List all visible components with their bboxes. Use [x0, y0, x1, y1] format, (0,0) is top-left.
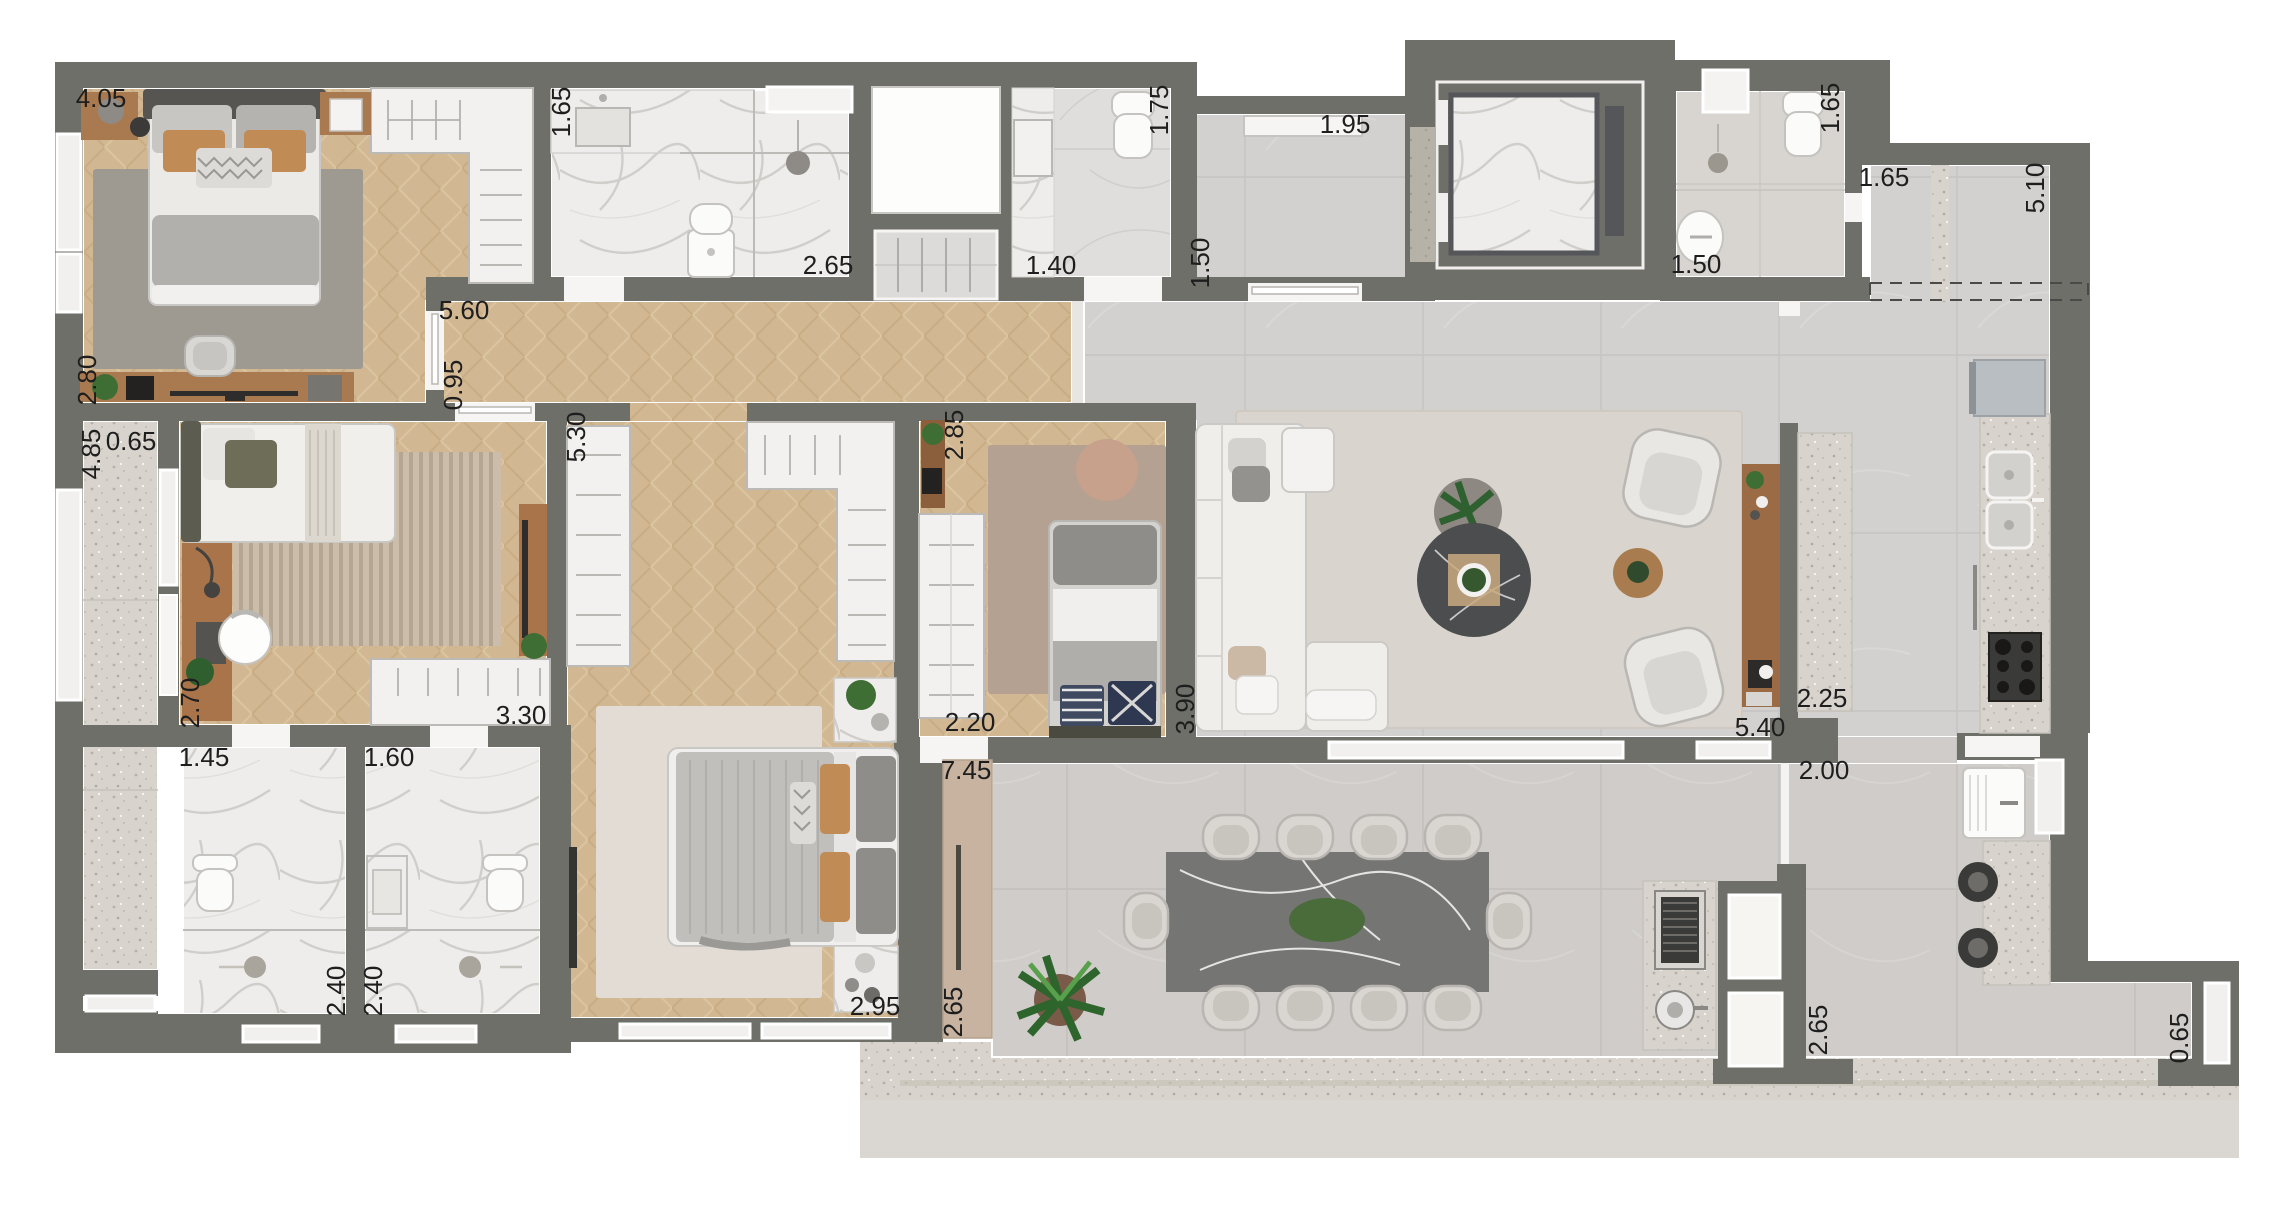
- svg-text:7.45: 7.45: [941, 755, 992, 785]
- svg-text:5.30: 5.30: [561, 412, 591, 463]
- svg-text:1.65: 1.65: [1859, 162, 1910, 192]
- svg-text:1.95: 1.95: [1320, 109, 1371, 139]
- svg-text:2.40: 2.40: [358, 966, 388, 1017]
- svg-text:2.80: 2.80: [72, 355, 102, 406]
- svg-text:0.65: 0.65: [2164, 1013, 2194, 1064]
- svg-text:4.05: 4.05: [76, 83, 127, 113]
- svg-text:2.65: 2.65: [1803, 1005, 1833, 1056]
- svg-text:1.65: 1.65: [1815, 83, 1845, 134]
- svg-text:1.50: 1.50: [1185, 238, 1215, 289]
- svg-text:0.65: 0.65: [106, 426, 157, 456]
- svg-text:1.40: 1.40: [1026, 250, 1077, 280]
- svg-text:2.85: 2.85: [939, 410, 969, 461]
- svg-text:2.40: 2.40: [321, 966, 351, 1017]
- svg-text:5.40: 5.40: [1735, 712, 1786, 742]
- svg-text:2.65: 2.65: [803, 250, 854, 280]
- svg-text:2.25: 2.25: [1797, 683, 1848, 713]
- svg-text:1.50: 1.50: [1671, 249, 1722, 279]
- svg-text:5.10: 5.10: [2020, 163, 2050, 214]
- svg-text:1.60: 1.60: [364, 742, 415, 772]
- svg-text:1.45: 1.45: [179, 742, 230, 772]
- svg-text:4.85: 4.85: [76, 429, 106, 480]
- svg-text:3.30: 3.30: [496, 700, 547, 730]
- svg-text:1.75: 1.75: [1144, 85, 1174, 136]
- svg-text:0.95: 0.95: [438, 360, 468, 411]
- svg-text:1.65: 1.65: [546, 87, 576, 138]
- svg-text:2.70: 2.70: [175, 678, 205, 729]
- svg-text:2.20: 2.20: [945, 707, 996, 737]
- svg-text:2.65: 2.65: [938, 987, 968, 1038]
- svg-text:3.90: 3.90: [1170, 684, 1200, 735]
- svg-text:5.60: 5.60: [439, 295, 490, 325]
- svg-text:2.00: 2.00: [1799, 755, 1850, 785]
- svg-text:2.95: 2.95: [850, 991, 901, 1021]
